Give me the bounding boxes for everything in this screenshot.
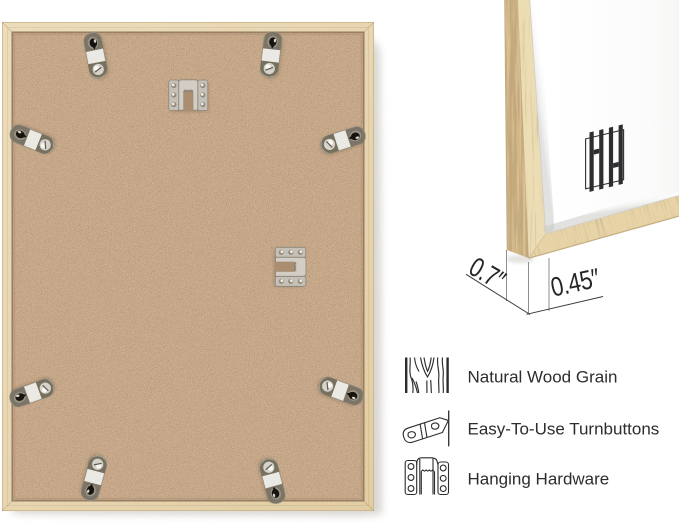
svg-text:Natural Wood Grain: Natural Wood Grain	[468, 368, 618, 387]
svg-text:Easy-To-Use Turnbuttons: Easy-To-Use Turnbuttons	[468, 420, 660, 439]
svg-text:Hanging Hardware: Hanging Hardware	[468, 470, 610, 489]
